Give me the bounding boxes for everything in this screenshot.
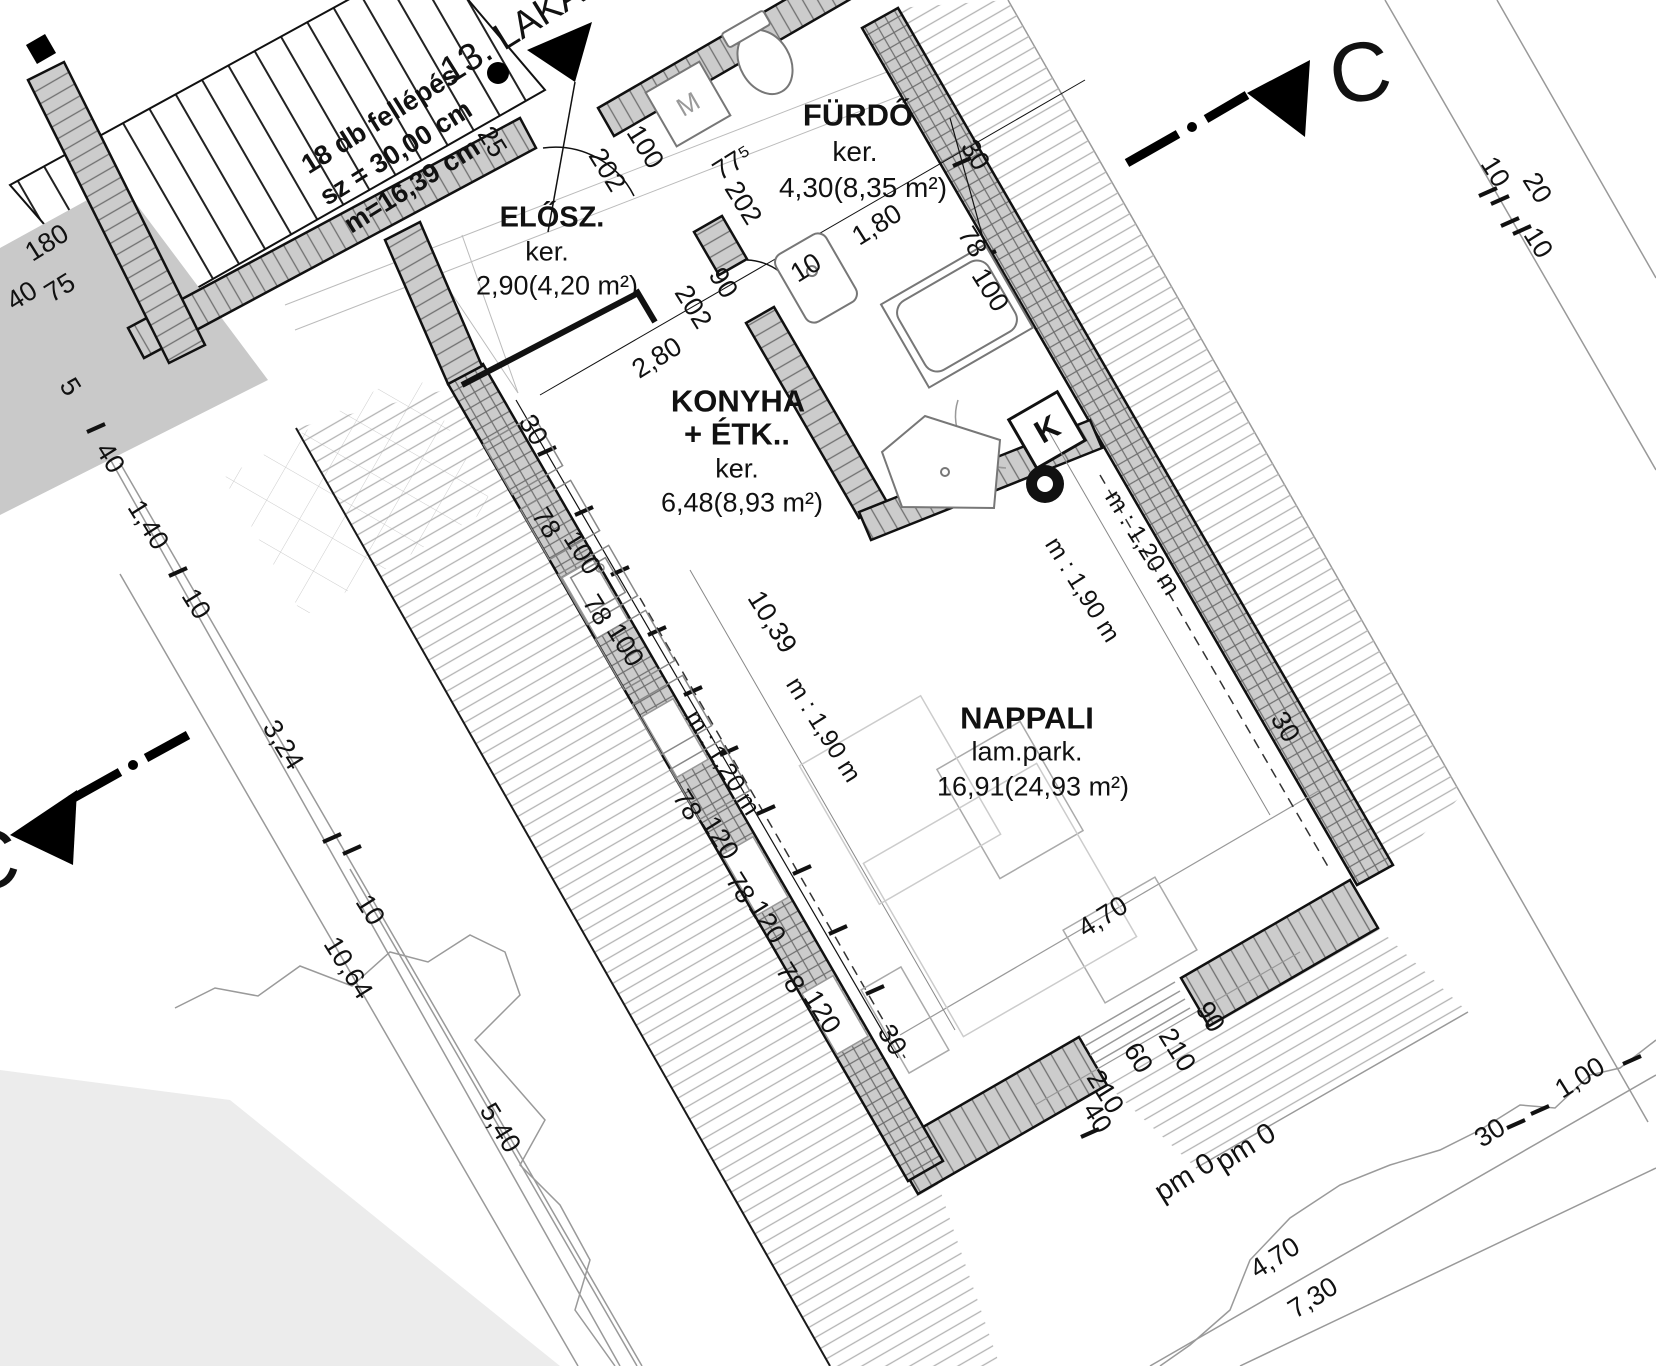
floor-plan: FÜRDŐker.4,30(8,35 m²)ELŐSZ.ker.2,90(4,2… xyxy=(0,0,1656,1366)
room-fuerdo-title: FÜRDŐ xyxy=(803,100,913,131)
room-nappali-finish: lam.park. xyxy=(971,739,1082,766)
room-fuerdo-area: 4,30(8,35 m²) xyxy=(779,174,947,202)
plan-linework xyxy=(0,0,1656,1366)
room-fuerdo-finish: ker. xyxy=(832,138,877,166)
konyha-partition xyxy=(462,290,655,385)
section-arrow-bottom-left xyxy=(10,790,77,865)
room-elosz-finish: ker. xyxy=(525,239,569,266)
room-nappali-area: 16,91(24,93 m²) xyxy=(937,774,1129,801)
room-elosz-title: ELŐSZ. xyxy=(500,204,605,233)
section-arrow-top-right xyxy=(1247,60,1310,137)
room-konyha-finish: ker. xyxy=(715,456,759,483)
room-elosz-area: 2,90(4,20 m²) xyxy=(476,273,638,300)
room-konyha-area: 6,48(8,93 m²) xyxy=(661,490,823,517)
room-konyha-title-line2: + ÉTK.. xyxy=(684,419,790,450)
room-konyha-title-line1: KONYHA xyxy=(671,386,805,417)
room-nappali-title: NAPPALI xyxy=(960,703,1094,734)
